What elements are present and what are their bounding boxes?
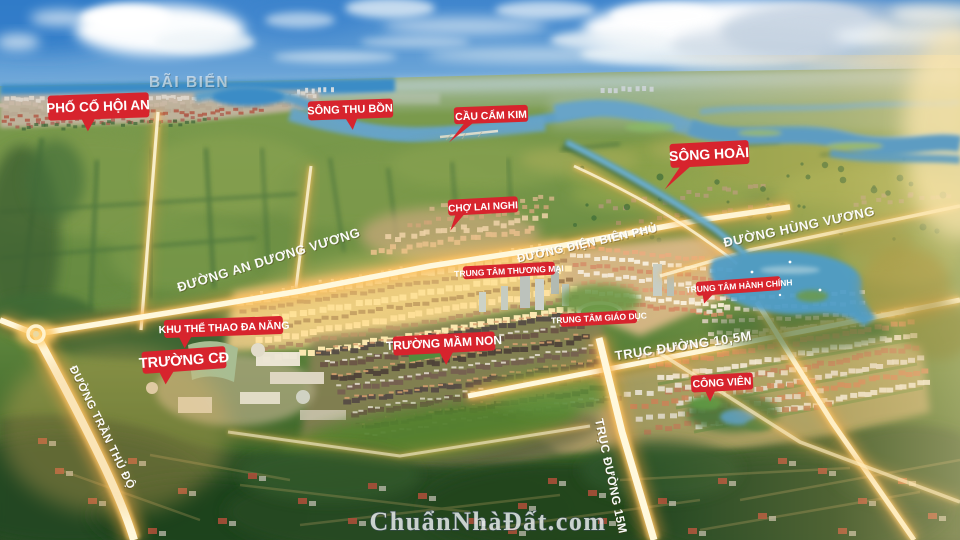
svg-text:ChuẩnNhàĐất.com: ChuẩnNhàĐất.com — [369, 507, 606, 536]
svg-text:CẦU CẨM KIM: CẦU CẨM KIM — [455, 108, 527, 124]
svg-text:BÃI BIỂN: BÃI BIỂN — [149, 73, 229, 91]
